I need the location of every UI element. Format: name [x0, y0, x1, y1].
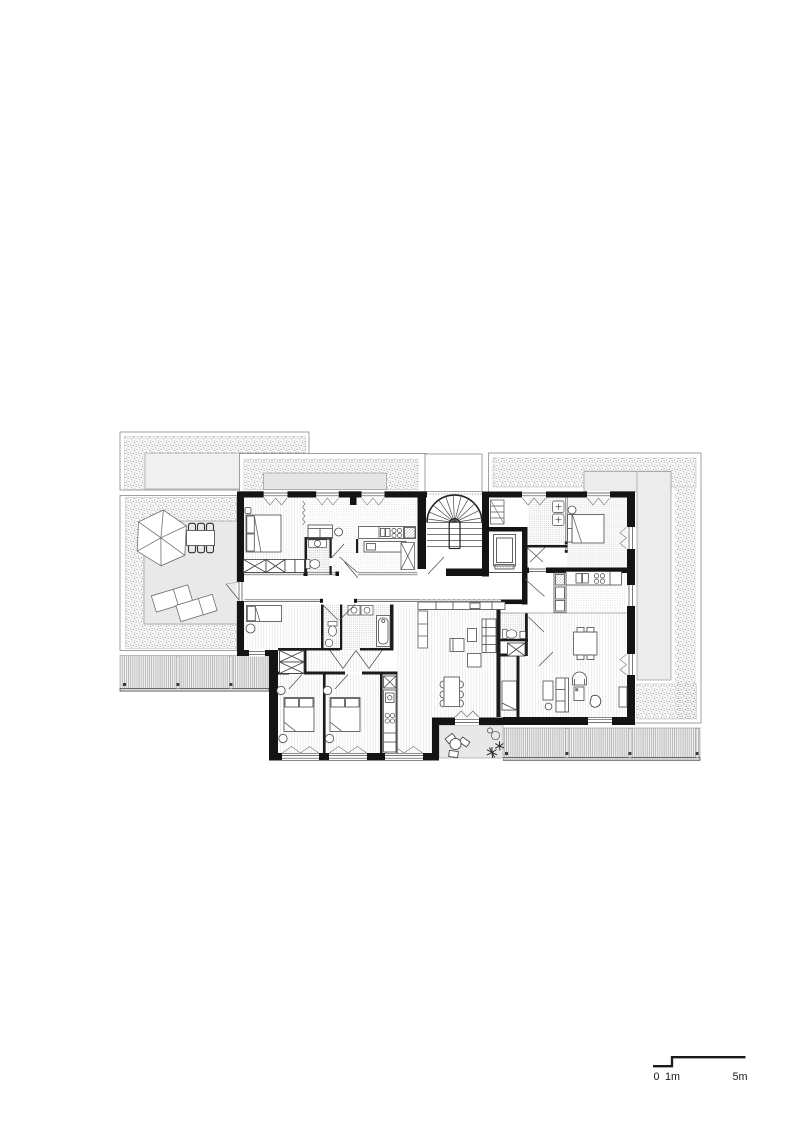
svg-text:5m: 5m	[733, 1071, 748, 1083]
svg-text:1m: 1m	[665, 1071, 680, 1083]
svg-text:0: 0	[653, 1071, 659, 1083]
